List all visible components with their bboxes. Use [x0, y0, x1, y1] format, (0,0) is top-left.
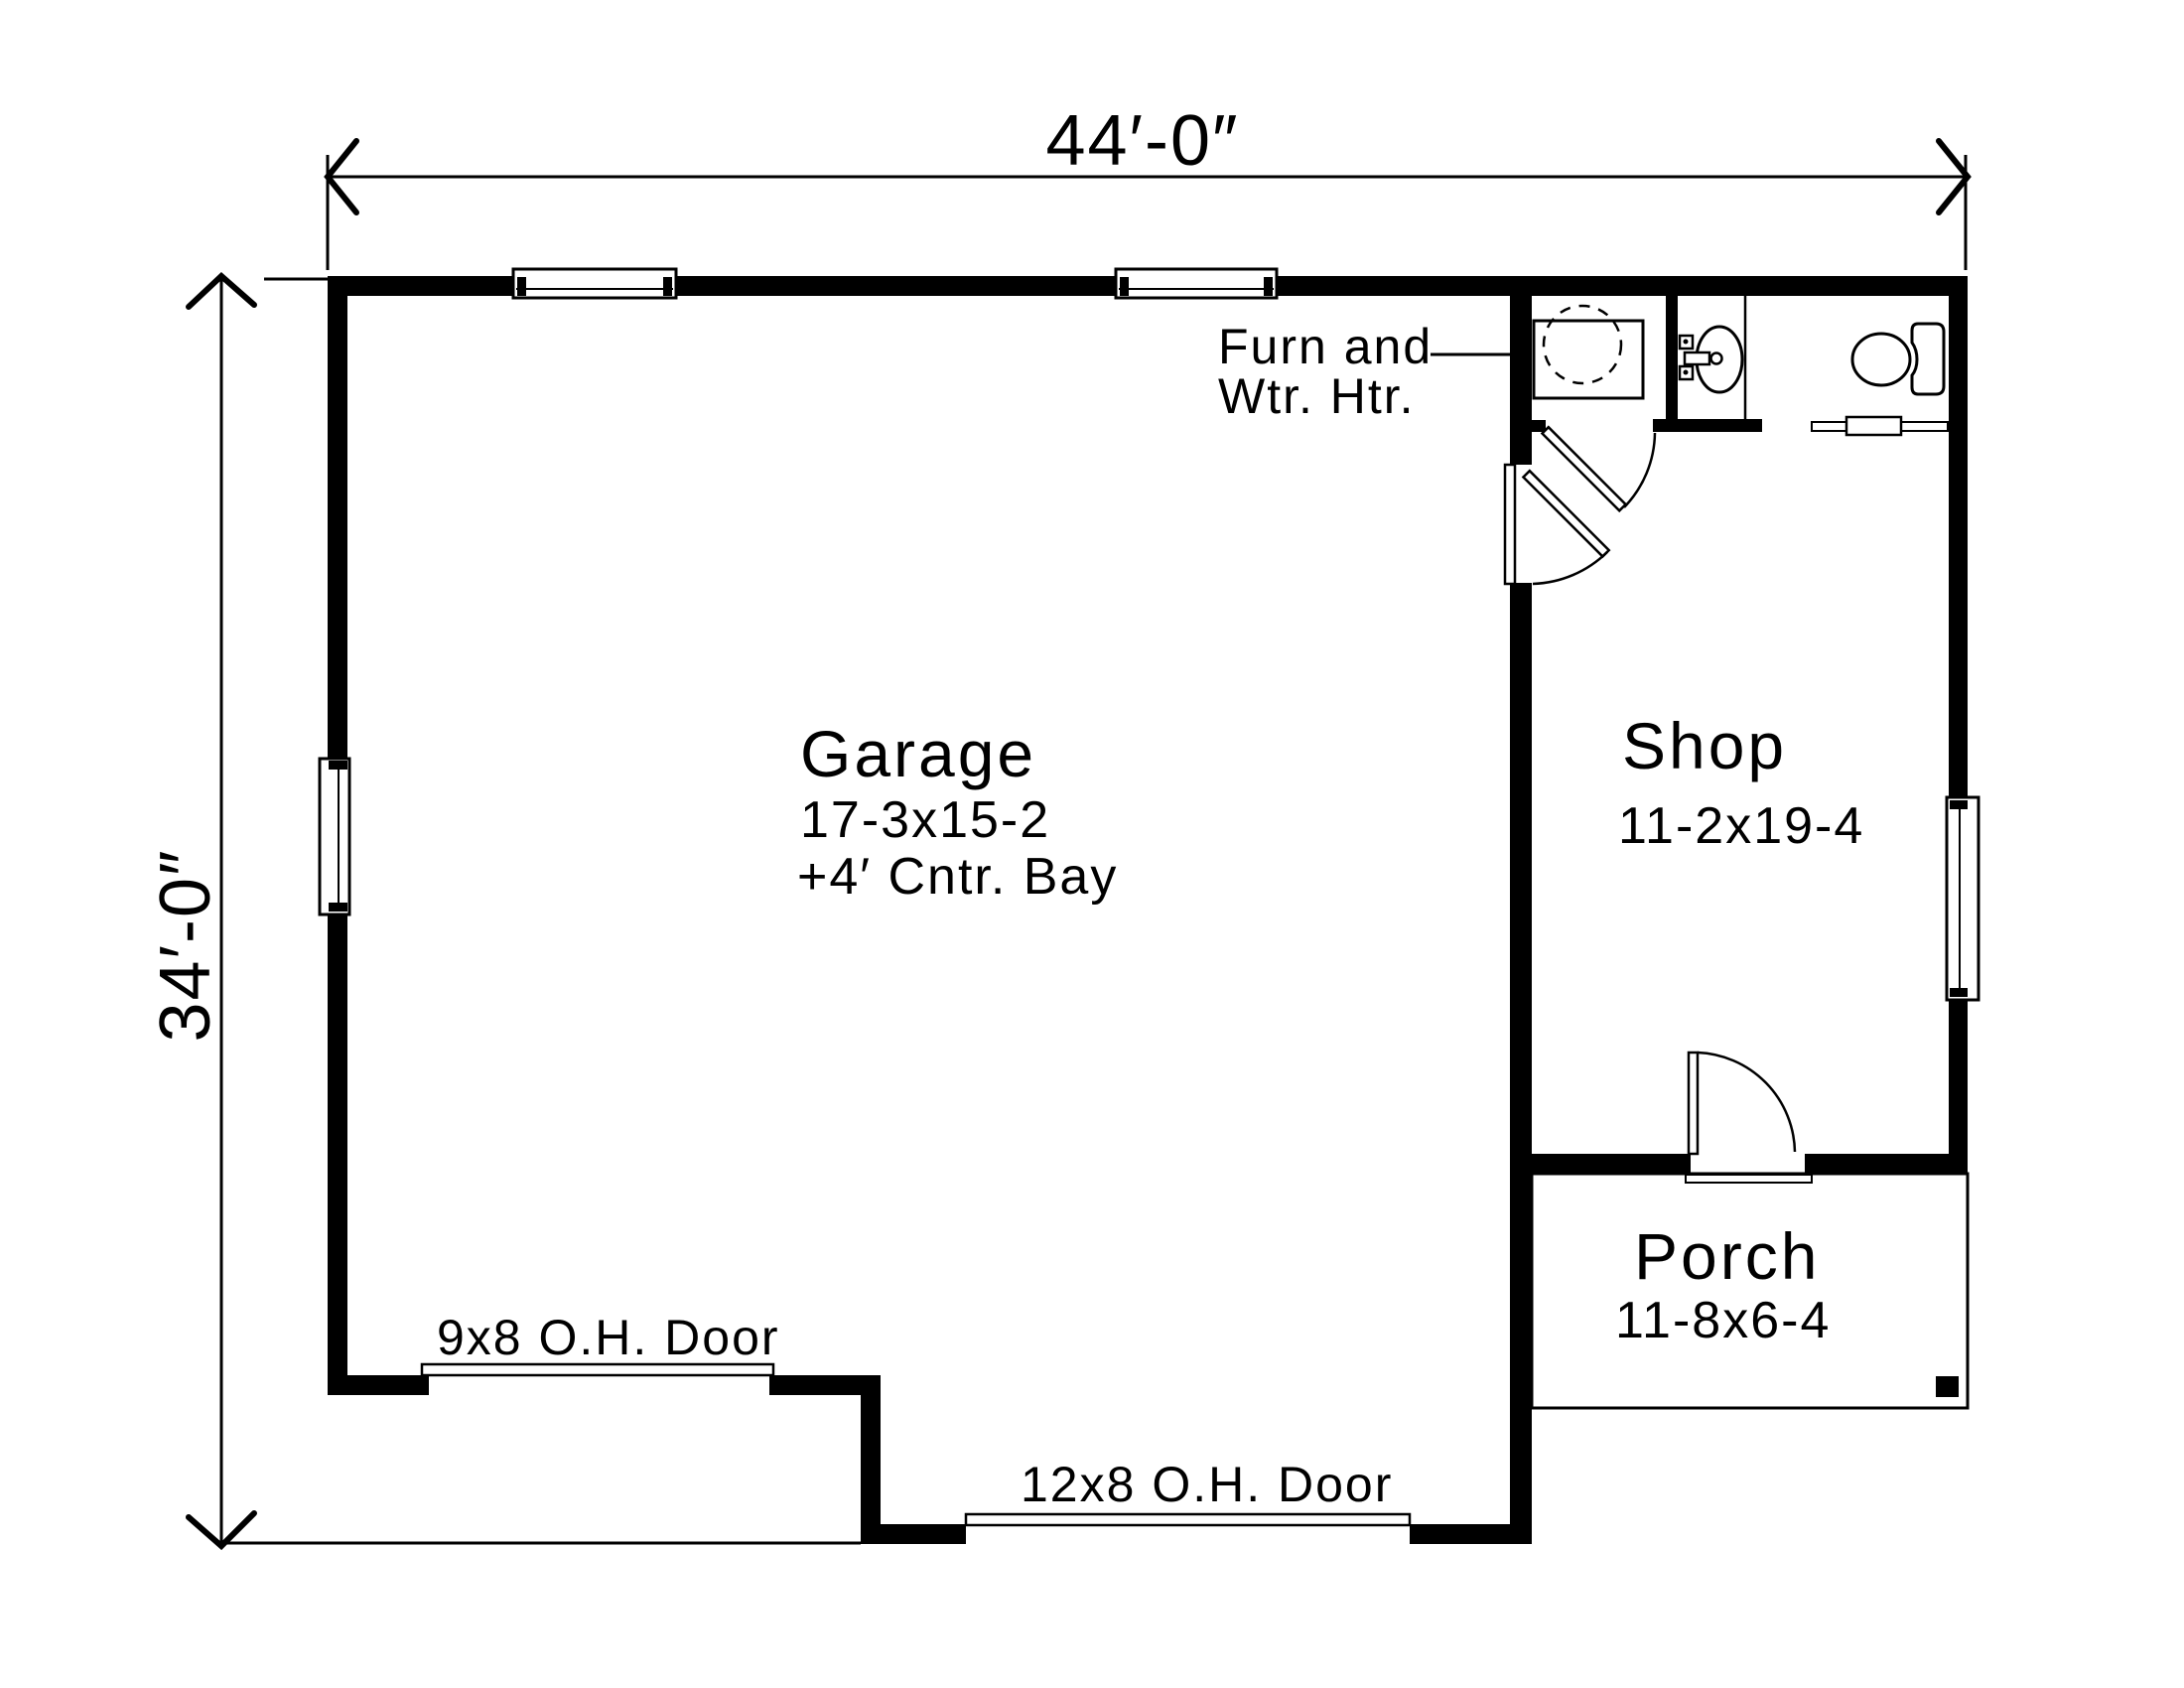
window-top-left — [513, 269, 676, 298]
garage-room-name: Garage — [800, 721, 1036, 786]
door-shop-to-porch — [1686, 1053, 1812, 1183]
window-left-wall — [320, 759, 349, 914]
garage-room-size: 17-3x15-2 — [800, 794, 1050, 846]
oh-door-9x8-label: 9x8 O.H. Door — [437, 1313, 780, 1362]
window-top-right — [1116, 269, 1277, 298]
oh-door-12x8-label: 12x8 O.H. Door — [1021, 1460, 1393, 1509]
oh-door-12x8-sill — [966, 1514, 1410, 1525]
dimension-overall-depth: 34′-0″ — [150, 848, 221, 1042]
porch-room-name: Porch — [1634, 1223, 1820, 1289]
furnace-water-heater-fixture — [1534, 306, 1643, 398]
shop-room-name: Shop — [1622, 713, 1787, 778]
dimension-overall-width: 44′-0″ — [944, 105, 1341, 177]
bathroom-sink-fixture — [1680, 327, 1742, 392]
porch-post — [1936, 1376, 1959, 1397]
window-right-wall — [1947, 797, 1979, 1000]
furnace-label-line1: Furn and — [1218, 322, 1433, 371]
door-furnace-closet — [1542, 427, 1655, 510]
porch-room-size: 11-8x6-4 — [1615, 1295, 1831, 1346]
oh-door-9x8-sill — [422, 1364, 773, 1375]
floor-plan: 44′-0″ 34′-0″ Garage 17-3x15-2 +4′ Cntr.… — [0, 0, 2184, 1688]
garage-room-note: +4′ Cntr. Bay — [797, 851, 1118, 903]
shop-room-size: 11-2x19-4 — [1618, 800, 1864, 852]
interior-walls — [1510, 296, 1949, 1544]
closet-shelf-rod — [1812, 417, 1948, 435]
furnace-label-line2: Wtr. Htr. — [1218, 371, 1416, 421]
toilet-fixture — [1852, 324, 1944, 394]
